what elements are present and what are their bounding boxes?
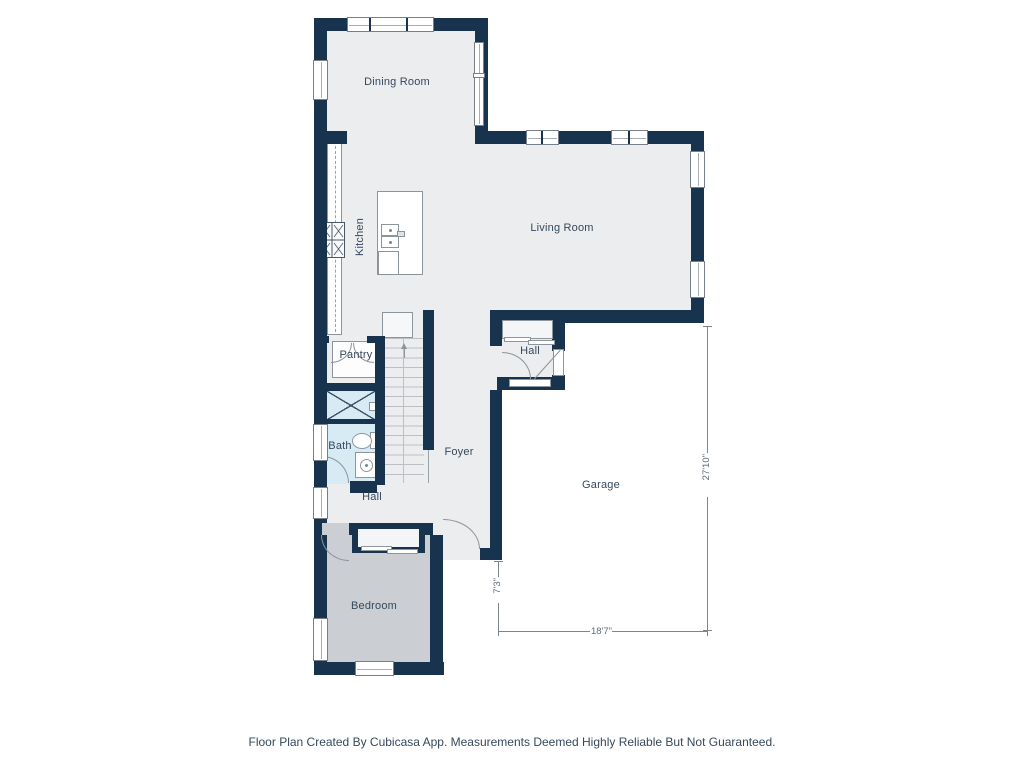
dim-garage-depth-line-bottom: [707, 497, 708, 631]
room-label-hall-entry: Hall: [520, 345, 540, 357]
hall-closet-slider-left: [504, 337, 531, 342]
dim-tick: [494, 561, 503, 562]
dim-tick: [498, 627, 499, 636]
living-window-mullion-1: [541, 131, 543, 144]
dim-tick: [703, 326, 712, 327]
living-right-window-1: [690, 151, 705, 188]
bedroom-left-window: [313, 618, 328, 661]
room-label-pantry: Pantry: [340, 349, 373, 361]
stairs-up-arrow-icon: [404, 346, 405, 358]
room-label-bath: Bath: [328, 440, 351, 452]
dining-top-window: [347, 17, 434, 32]
bedroom-door-opening: [322, 523, 349, 535]
living-window-mullion-2: [628, 131, 630, 144]
bath-sink-icon: [355, 452, 377, 478]
room-label-kitchen: Kitchen: [354, 218, 366, 256]
wall-bedroom-right: [430, 535, 443, 665]
wall-pantry-top-left: [314, 336, 329, 343]
dim-garage-width-label: 18'7": [591, 626, 612, 637]
island-faucet-icon: [397, 231, 405, 237]
bedroom-bottom-window: [355, 661, 394, 676]
toilet-bowl-icon: [352, 433, 372, 449]
wall-garage-left: [490, 390, 502, 555]
front-door-opening: [443, 548, 480, 560]
room-label-foyer: Foyer: [444, 446, 473, 458]
wall-stairs-left: [375, 336, 385, 485]
footer-disclaimer: Floor Plan Created By Cubicasa App. Meas…: [0, 735, 1024, 749]
garage-door-panel: [553, 349, 564, 376]
dim-garage-depth-line-top: [707, 327, 708, 453]
island-sink-icon-2: [381, 236, 399, 248]
living-right-window-2: [690, 261, 705, 298]
dim-garage-width-line-left: [498, 631, 590, 632]
dining-right-glass: [474, 42, 484, 126]
room-label-living: Living Room: [530, 222, 593, 234]
dim-garage-depth-label: 27'10": [701, 454, 712, 480]
stair-landing: [382, 312, 413, 338]
staircase: [384, 338, 424, 483]
floor-plan-page: 27'10" 7'3" 18'7" Dining Room Living Roo…: [0, 0, 1024, 768]
wall-living-top: [475, 131, 704, 144]
kitchen-living-floor: [318, 135, 698, 317]
closet-slider-right: [387, 549, 418, 554]
dining-glass-notch: [473, 73, 485, 78]
wall-outer-left: [314, 18, 327, 675]
dim-entry-inset-line-top: [498, 561, 499, 577]
wall-hall-entry-left: [490, 310, 502, 346]
hall-bottom-door-panel: [509, 379, 551, 387]
dining-left-window: [313, 60, 328, 100]
room-label-hall: Hall: [362, 491, 382, 503]
wall-stairs-right: [423, 310, 434, 450]
dining-window-mullion-2: [406, 18, 408, 31]
dim-garage-width-line-right: [612, 631, 707, 632]
wall-dining-bottom-stub: [314, 131, 347, 144]
bedroom-closet-interior: [358, 529, 419, 547]
dining-window-mullion-1: [369, 18, 371, 31]
bath-left-window: [313, 424, 328, 461]
room-label-dining: Dining Room: [364, 76, 430, 88]
dim-entry-inset-label: 7'3": [492, 578, 503, 594]
wall-pantry-bottom: [314, 383, 377, 391]
dim-tick: [707, 627, 708, 636]
stair-rail-line: [428, 450, 429, 483]
room-label-garage: Garage: [582, 479, 620, 491]
island-cabinet: [378, 251, 399, 275]
hall-left-window: [313, 487, 328, 519]
room-label-bedroom: Bedroom: [351, 600, 397, 612]
